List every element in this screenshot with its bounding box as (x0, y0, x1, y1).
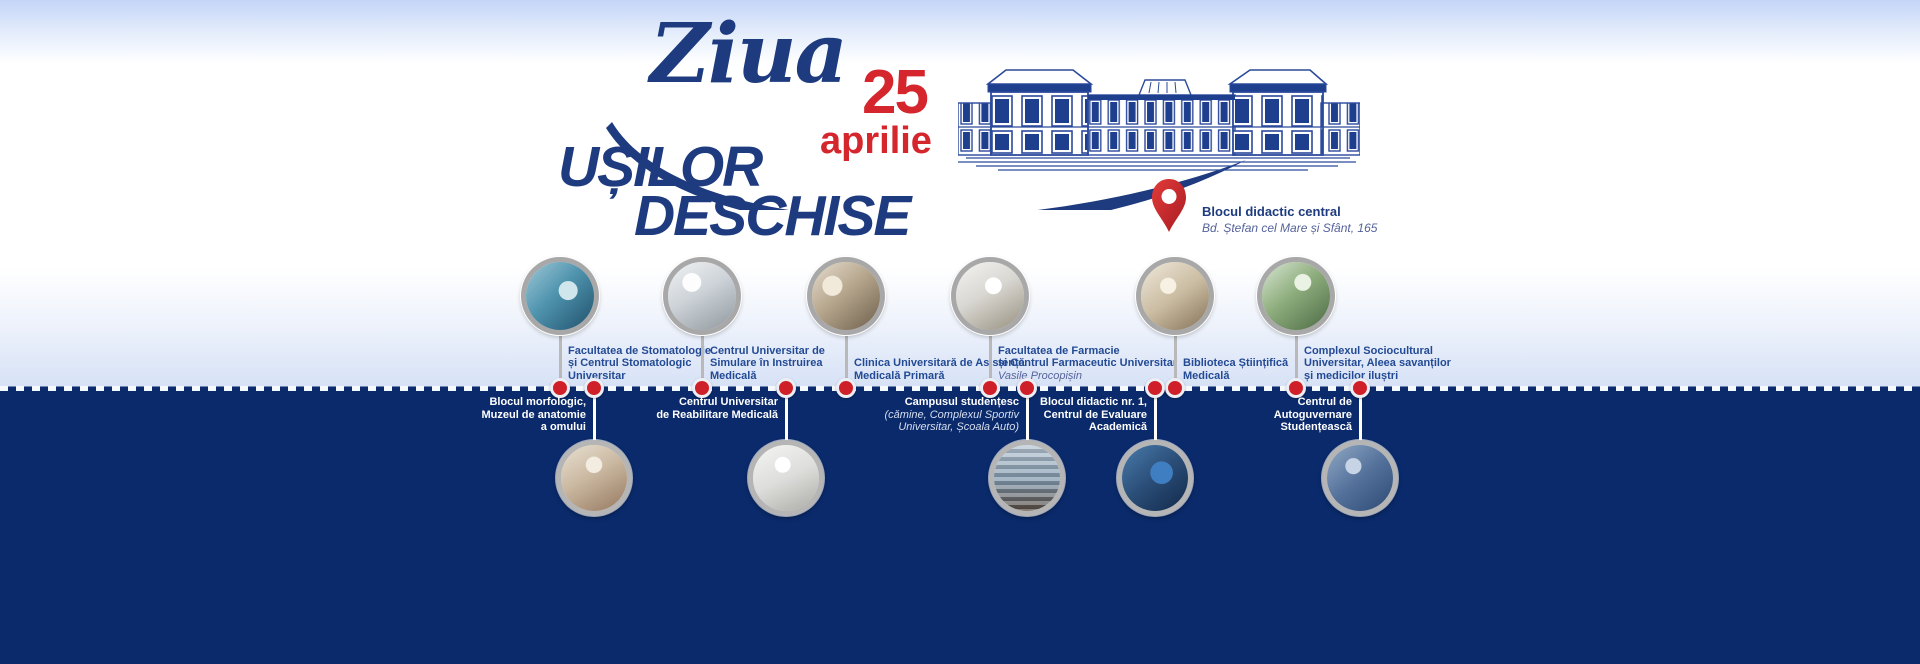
label-line: Medicală (1183, 370, 1288, 383)
medical-simulation-photo (668, 262, 736, 330)
title-script-word: Ziua (650, 6, 846, 102)
location-photo-frame[interactable] (556, 440, 632, 516)
timeline-dot[interactable] (1145, 378, 1165, 398)
timeline-dot[interactable] (1286, 378, 1306, 398)
library-photo (1141, 262, 1209, 330)
label-line-italic: Universitar, Școala Auto) (885, 421, 1020, 434)
open-doors-day-banner: Ziua UȘILOR DESCHISE 25 aprilie (0, 0, 1920, 664)
timeline-dot[interactable] (692, 378, 712, 398)
location-photo-frame[interactable] (1322, 440, 1398, 516)
student-government-photo (1327, 445, 1393, 511)
anatomy-museum-photo (561, 445, 627, 511)
location-photo-frame[interactable] (807, 257, 885, 335)
label-line: Simulare în Instruirea (710, 357, 825, 370)
location-photo-frame[interactable] (1257, 257, 1335, 335)
timeline-dashed-line (0, 386, 1920, 391)
label-line: Centrul de Evaluare (1040, 409, 1147, 422)
label-line: și medicilor iluștri (1304, 370, 1451, 383)
location-label: Biblioteca ȘtiințificăMedicală (1183, 357, 1288, 382)
venue-name: Blocul didactic central (1202, 204, 1341, 219)
timeline-dot[interactable] (1350, 378, 1370, 398)
label-line: Centrul Universitar (656, 396, 778, 409)
location-photo-frame[interactable] (521, 257, 599, 335)
location-label: Facultatea de Farmacieși Centrul Farmace… (998, 345, 1177, 383)
location-label: Complexul SocioculturalUniversitar, Alee… (1304, 345, 1451, 383)
label-line: și Centrul Stomatologic (568, 357, 711, 370)
label-line-italic: (cămine, Complexul Sportiv (885, 409, 1020, 422)
location-label: Centrul deAutoguvernareStudențească (1274, 396, 1352, 434)
label-line: Biblioteca Științifică (1183, 357, 1288, 370)
label-line: și Centrul Farmaceutic Universitar (998, 357, 1177, 370)
label-line: Campusul studențesc (885, 396, 1020, 409)
event-date-day: 25 (862, 62, 927, 124)
location-label: Centrul Universitar deSimulare în Instru… (710, 345, 825, 383)
computer-lab-photo (1122, 445, 1188, 511)
timeline-dot[interactable] (550, 378, 570, 398)
label-line: Facultatea de Farmacie (998, 345, 1177, 358)
university-building-line-art-icon (958, 48, 1360, 176)
timeline-dot[interactable] (836, 378, 856, 398)
label-line: Blocul morfologic, (481, 396, 586, 409)
timeline-dot[interactable] (1165, 378, 1185, 398)
sociocultural-complex-photo (1262, 262, 1330, 330)
label-line: Autoguvernare (1274, 409, 1352, 422)
label-line: Blocul didactic nr. 1, (1040, 396, 1147, 409)
label-line: Centrul Universitar de (710, 345, 825, 358)
location-pin-icon (1150, 178, 1188, 234)
location-photo-frame[interactable] (951, 257, 1029, 335)
label-line: Facultatea de Stomatologie (568, 345, 711, 358)
location-label: Facultatea de Stomatologieși Centrul Sto… (568, 345, 711, 383)
label-line: Centrul de (1274, 396, 1352, 409)
location-photo-frame[interactable] (663, 257, 741, 335)
location-photo-frame[interactable] (1117, 440, 1193, 516)
location-label: Blocul didactic nr. 1,Centrul de Evaluar… (1040, 396, 1147, 434)
timeline-dot[interactable] (1017, 378, 1037, 398)
rehabilitation-center-photo (753, 445, 819, 511)
label-line: Muzeul de anatomie (481, 409, 586, 422)
label-line: Medicală (710, 370, 825, 383)
label-line: Universitar, Aleea savanților (1304, 357, 1451, 370)
title-line-deschise: DESCHISE (634, 188, 909, 245)
location-photo-frame[interactable] (989, 440, 1065, 516)
location-label: Campusul studențesc(cămine, Complexul Sp… (885, 396, 1020, 434)
location-label: Blocul morfologic,Muzeul de anatomiea om… (481, 396, 586, 434)
label-line: Studențească (1274, 421, 1352, 434)
primary-care-clinic-photo (812, 262, 880, 330)
timeline-dot[interactable] (584, 378, 604, 398)
dental-clinic-photo (526, 262, 594, 330)
location-label: Centrul Universitarde Reabilitare Medica… (656, 396, 778, 421)
location-photo-frame[interactable] (1136, 257, 1214, 335)
pharmacy-photo (956, 262, 1024, 330)
timeline-dot[interactable] (776, 378, 796, 398)
venue-address: Bd. Ștefan cel Mare și Sfânt, 165 (1202, 221, 1377, 235)
label-line: Academică (1040, 421, 1147, 434)
event-date-month: aprilie (820, 122, 932, 160)
label-line: a omului (481, 421, 586, 434)
label-line: Complexul Sociocultural (1304, 345, 1451, 358)
student-campus-photo (994, 445, 1060, 511)
label-line: de Reabilitare Medicală (656, 409, 778, 422)
timeline-dot[interactable] (980, 378, 1000, 398)
location-photo-frame[interactable] (748, 440, 824, 516)
